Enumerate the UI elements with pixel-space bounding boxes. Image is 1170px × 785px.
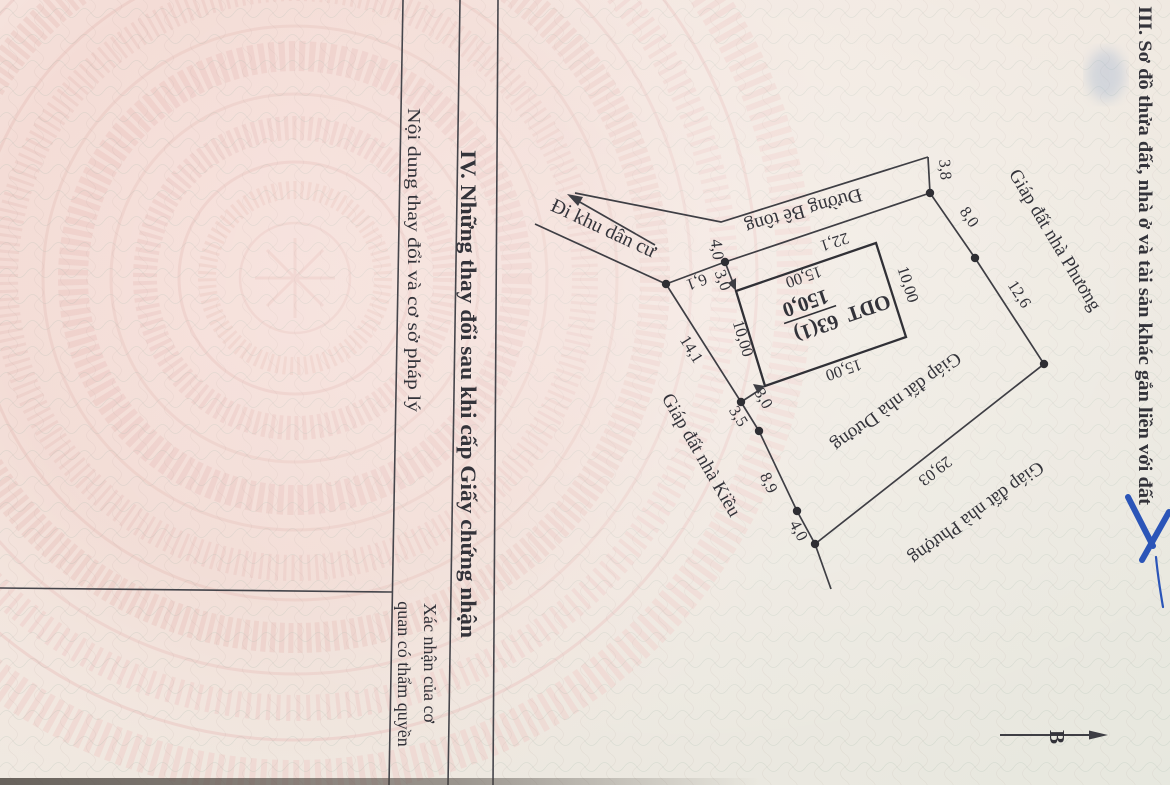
section-iv-title: IV. Những thay đổi sau khi cấp Giấy chứn… [456,150,481,638]
dim-3-8: 3,8 [935,158,956,180]
photo-light-reflection [0,0,1170,785]
column-header-confirm-line1: Xác nhận của cơ [420,603,440,723]
column-header-content: Nội dung thay đổi và cơ sở pháp lý [404,108,424,412]
north-label: B [1045,730,1069,744]
dim-4-0-top: 4,0 [707,238,728,260]
photo-edge-shadow [0,778,760,785]
section-iii-title: III. Sơ đồ thửa đất, nhà ở và tài sản kh… [1134,6,1155,506]
column-header-confirm-line2: quan có thẩm quyền [394,601,414,746]
stamp-smudge [1087,49,1125,101]
land-certificate-photo: III. Sơ đồ thửa đất, nhà ở và tài sản kh… [0,0,1170,785]
